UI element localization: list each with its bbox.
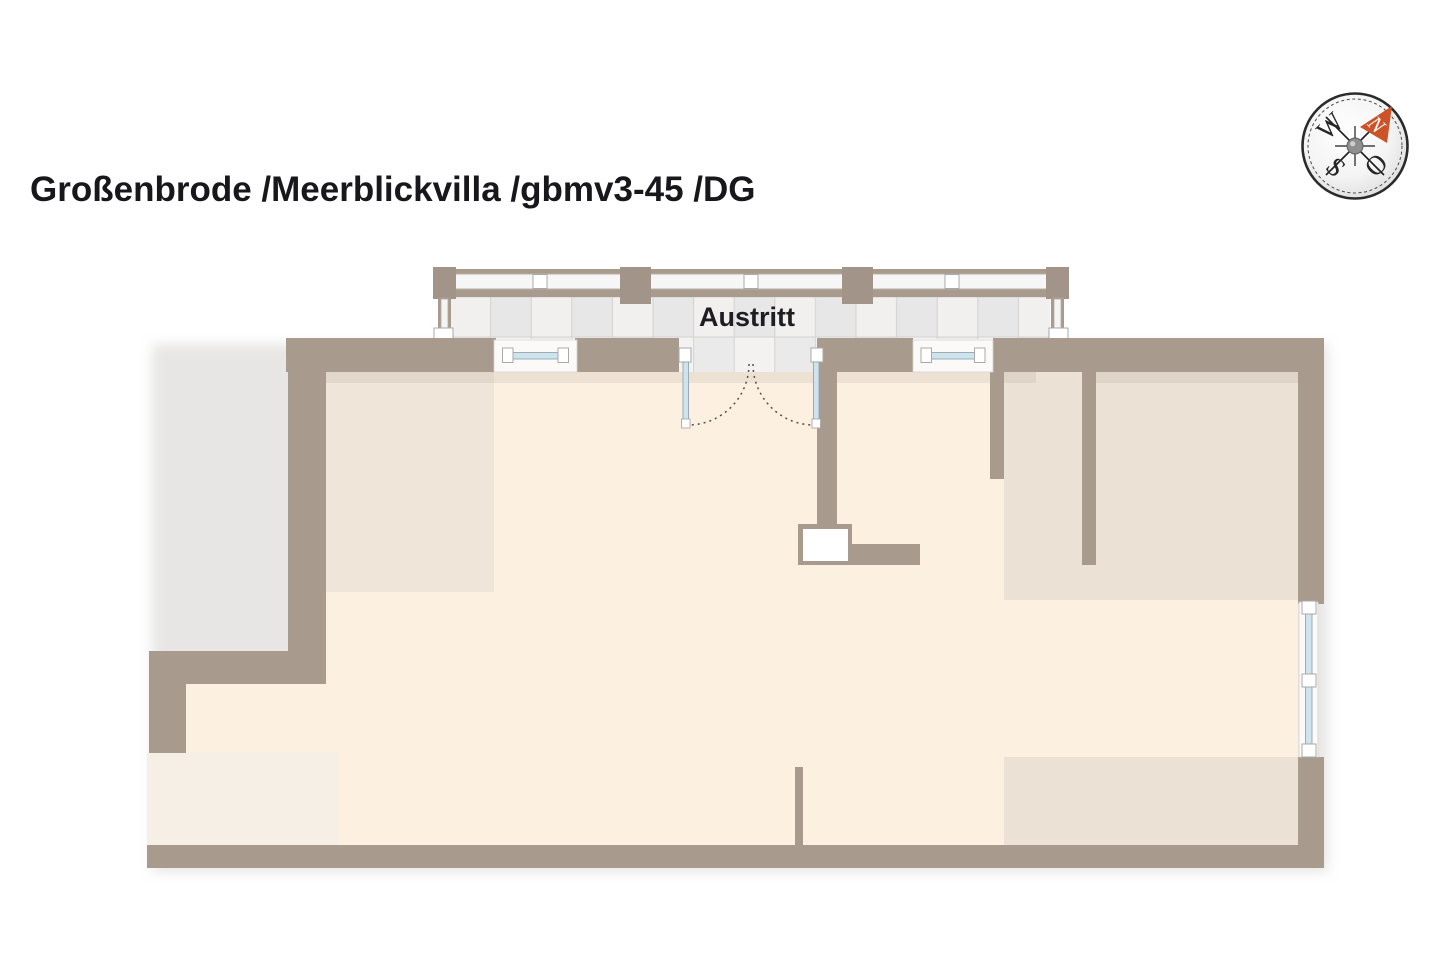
svg-text:Austritt: Austritt <box>699 302 795 332</box>
svg-text:Großenbrode /Meerblickvilla /g: Großenbrode /Meerblickvilla /gbmv3-45 /D… <box>30 170 755 209</box>
